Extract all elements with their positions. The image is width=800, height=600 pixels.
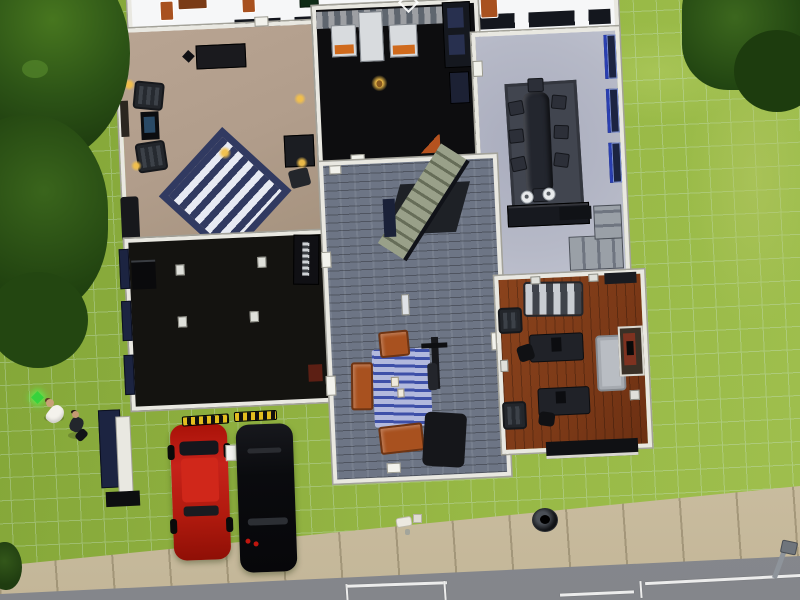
dining-chair[interactable] xyxy=(553,152,570,168)
blue-window xyxy=(603,34,617,78)
blue-window xyxy=(608,142,622,183)
car-windshield xyxy=(179,440,218,455)
upper-floor-edge xyxy=(383,199,397,238)
treadmill[interactable] xyxy=(293,235,319,285)
armchair[interactable] xyxy=(498,307,523,334)
car-wheel xyxy=(226,517,234,532)
dark-wall-band xyxy=(604,272,636,284)
wall-sconce xyxy=(175,264,184,275)
car-wheel xyxy=(170,519,178,534)
blue-window xyxy=(606,88,620,132)
sim-male[interactable] xyxy=(62,406,94,442)
wall-sconce xyxy=(250,311,259,322)
taillight xyxy=(245,539,250,544)
car-wheel xyxy=(167,445,175,460)
plumbob-icon xyxy=(31,391,44,404)
stove[interactable] xyxy=(331,24,357,57)
car-side-mirror xyxy=(225,445,237,461)
porch-chair[interactable] xyxy=(241,0,256,13)
privacy-wall-cap xyxy=(116,417,133,498)
porch-bench[interactable] xyxy=(177,0,208,10)
tree-highlight xyxy=(22,60,48,78)
computer[interactable] xyxy=(556,391,567,403)
trash-can[interactable] xyxy=(532,508,558,532)
dining-table[interactable] xyxy=(522,92,554,195)
newspaper-roll xyxy=(395,516,412,529)
media-console[interactable] xyxy=(195,43,246,69)
exercise-equipment[interactable] xyxy=(422,411,467,467)
ground-mark xyxy=(405,529,410,535)
wall-sconce xyxy=(530,276,540,284)
red-car[interactable] xyxy=(170,423,232,561)
cabinet-panel xyxy=(449,71,470,104)
car-roof-glint xyxy=(247,447,281,453)
rust-sofa[interactable] xyxy=(351,362,374,410)
kitchen-counters[interactable] xyxy=(569,234,624,270)
wall-sconce xyxy=(257,257,266,268)
sims-lot-overhead-view xyxy=(0,0,800,600)
door-threshold[interactable] xyxy=(321,252,332,268)
door-threshold[interactable] xyxy=(254,16,268,27)
armchair[interactable] xyxy=(502,401,527,430)
wall-sconce xyxy=(500,360,509,372)
rust-loveseat[interactable] xyxy=(378,422,425,455)
tree-top-left xyxy=(0,0,160,380)
computer[interactable] xyxy=(551,337,562,351)
coffee-table-item[interactable] xyxy=(391,377,399,387)
tall-cabinets[interactable] xyxy=(442,1,473,68)
desk-chair[interactable] xyxy=(538,411,556,427)
black-car[interactable] xyxy=(235,423,297,573)
newspaper[interactable] xyxy=(396,514,422,538)
counter-unit[interactable] xyxy=(389,23,418,57)
rust-armchair[interactable] xyxy=(378,329,410,358)
porch-chair[interactable] xyxy=(159,1,174,22)
dining-chair[interactable] xyxy=(507,100,524,117)
dining-chair[interactable] xyxy=(551,94,567,109)
door-threshold[interactable] xyxy=(472,61,483,77)
kitchen-counters[interactable] xyxy=(593,204,623,239)
weight-bench[interactable] xyxy=(427,363,438,390)
bar-segment[interactable] xyxy=(559,206,592,220)
striped-loveseat[interactable] xyxy=(523,281,583,317)
mailbox[interactable] xyxy=(762,540,800,580)
door-threshold[interactable] xyxy=(326,376,337,396)
wall-sconce xyxy=(630,390,640,400)
dining-chair[interactable] xyxy=(508,128,525,144)
floor-lamp[interactable] xyxy=(401,294,410,315)
tree-top-right xyxy=(672,0,800,123)
dark-red-item[interactable] xyxy=(308,364,323,382)
door-threshold[interactable] xyxy=(387,463,401,474)
dining-chair[interactable] xyxy=(553,125,569,140)
car-roof xyxy=(181,457,220,502)
car-trunk-glint xyxy=(248,517,288,525)
sim-head xyxy=(72,411,79,418)
wall-sconce xyxy=(588,274,598,282)
dining-chair[interactable] xyxy=(527,78,544,93)
taillight xyxy=(254,541,259,546)
fireplace[interactable] xyxy=(618,326,645,377)
mailbox-post xyxy=(772,549,787,579)
chaise-lounge[interactable] xyxy=(479,0,498,19)
porch-step xyxy=(546,438,639,459)
wall-tag xyxy=(329,165,341,175)
coffee-table-item[interactable] xyxy=(397,388,404,397)
wall-sconce xyxy=(178,316,187,327)
sink-module[interactable] xyxy=(358,11,384,62)
privacy-wall-base xyxy=(106,491,141,508)
newspaper-page xyxy=(413,514,422,523)
car-rear-window xyxy=(183,505,218,516)
